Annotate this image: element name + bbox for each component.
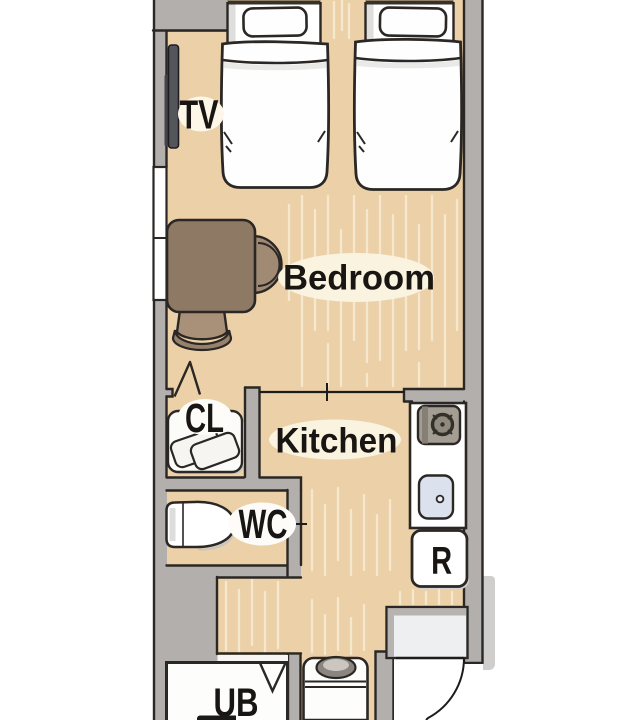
svg-text:TV: TV bbox=[180, 92, 219, 138]
svg-text:Bedroom: Bedroom bbox=[283, 259, 435, 298]
svg-text:UB: UB bbox=[214, 681, 259, 720]
svg-text:Kitchen: Kitchen bbox=[276, 422, 398, 461]
svg-text:CL: CL bbox=[185, 395, 224, 441]
svg-text:WC: WC bbox=[239, 501, 288, 547]
svg-text:R: R bbox=[431, 540, 452, 583]
